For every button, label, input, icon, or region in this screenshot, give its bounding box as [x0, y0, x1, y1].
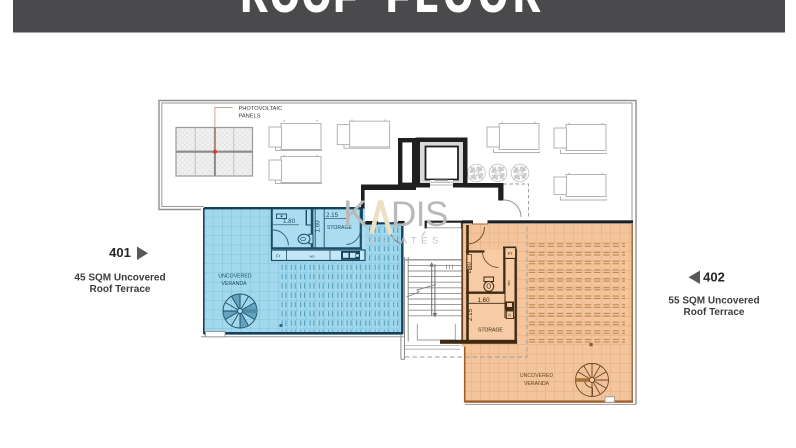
- svg-text:DIS: DIS: [391, 195, 448, 234]
- svg-text:401: 401: [109, 245, 131, 260]
- svg-text:Roof Terrace: Roof Terrace: [90, 284, 151, 295]
- svg-text:402: 402: [703, 270, 725, 285]
- svg-text:1.60: 1.60: [315, 220, 322, 233]
- svg-text:2.15: 2.15: [326, 212, 339, 219]
- svg-text:55 SQM Uncovered: 55 SQM Uncovered: [668, 296, 759, 307]
- svg-text:ROOF: ROOF: [241, 0, 359, 21]
- svg-text:UNCOVERED: UNCOVERED: [520, 373, 553, 379]
- svg-text:1.80: 1.80: [283, 218, 296, 225]
- svg-text:45 SQM Uncovered: 45 SQM Uncovered: [74, 273, 165, 284]
- svg-text:Fr: Fr: [508, 251, 513, 256]
- svg-text:2.15: 2.15: [467, 308, 474, 321]
- svg-text:PANELS: PANELS: [239, 114, 261, 120]
- svg-text:VERANDA: VERANDA: [221, 281, 247, 287]
- svg-text:PHOTOVOLTAIC: PHOTOVOLTAIC: [239, 106, 283, 112]
- svg-text:VERANDA: VERANDA: [524, 381, 550, 387]
- svg-text:Fr: Fr: [276, 254, 281, 259]
- svg-text:wo: wo: [506, 280, 511, 286]
- svg-text:1.60: 1.60: [478, 297, 491, 304]
- svg-text:FLOOR: FLOOR: [387, 0, 547, 21]
- svg-text:Roof Terrace: Roof Terrace: [684, 307, 745, 318]
- svg-text:STORAGE: STORAGE: [478, 328, 503, 334]
- svg-text:UNCOVERED: UNCOVERED: [218, 274, 251, 280]
- svg-text:K: K: [343, 193, 368, 234]
- svg-text:wo: wo: [310, 254, 316, 259]
- svg-text:1.80: 1.80: [467, 262, 473, 274]
- svg-text:ESTATES: ESTATES: [369, 236, 443, 247]
